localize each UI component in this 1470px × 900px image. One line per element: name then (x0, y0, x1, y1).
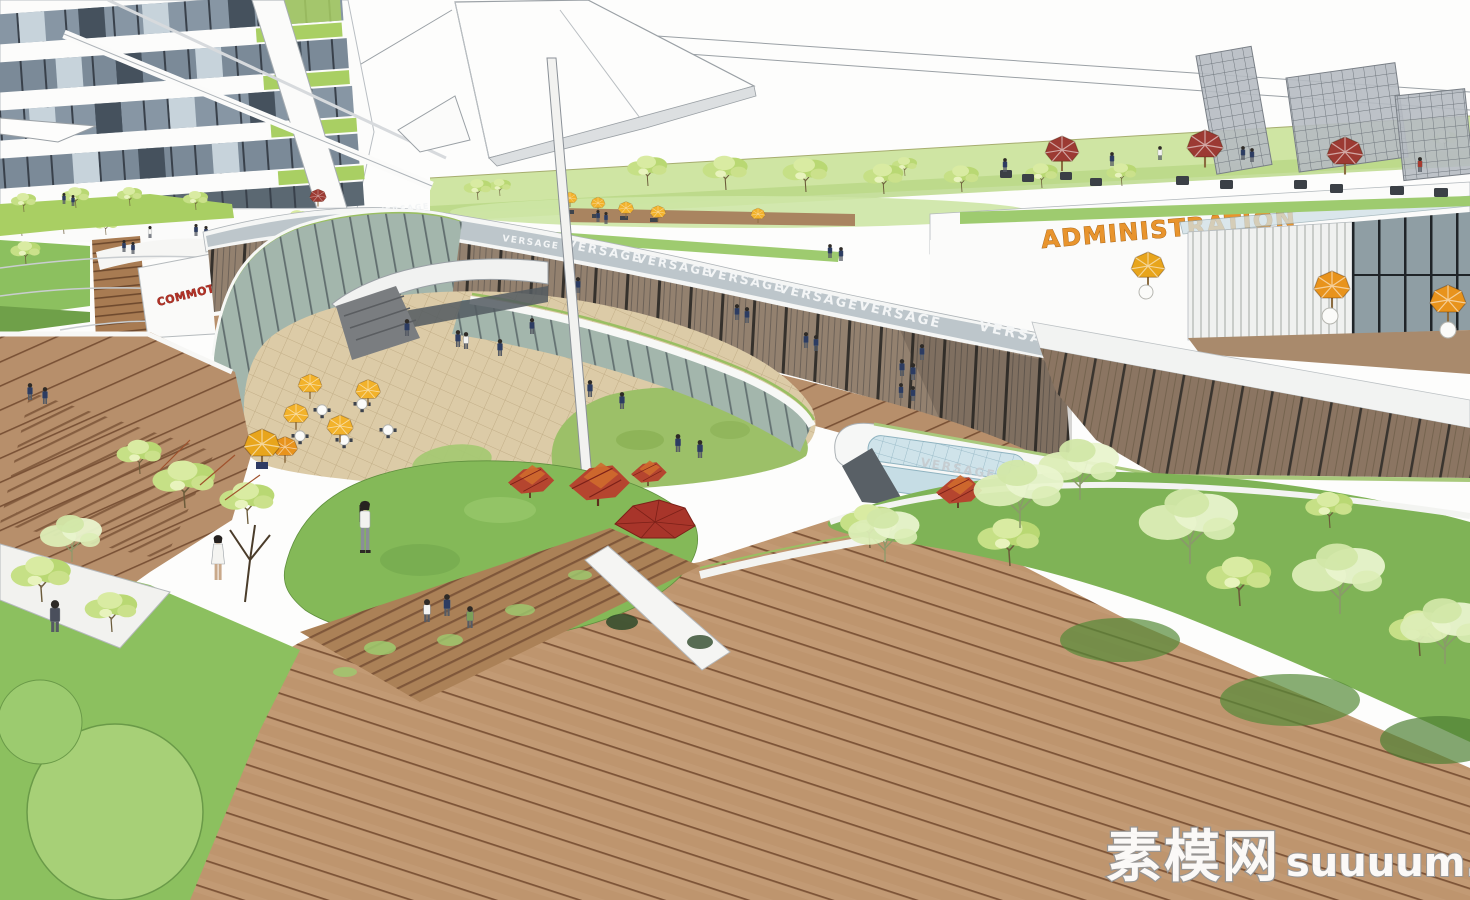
watermark-site-name: 素模网 (1106, 825, 1280, 890)
scene-canvas: COMMOTION ADMINISTRATION (0, 0, 1470, 900)
glass-curtain-wall (1352, 212, 1470, 334)
dark-shrub (606, 614, 638, 630)
cafe-table (1322, 308, 1338, 324)
architectural-render: COMMOTION ADMINISTRATION (0, 0, 1470, 900)
bench (256, 462, 268, 469)
cafe-table (1440, 322, 1456, 338)
cafe-table (1139, 285, 1153, 299)
lawn-mound (0, 680, 82, 764)
trellis-panel (1395, 89, 1470, 181)
dark-shrub (687, 635, 713, 649)
watermark-domain: suuuum.com (1286, 840, 1470, 886)
